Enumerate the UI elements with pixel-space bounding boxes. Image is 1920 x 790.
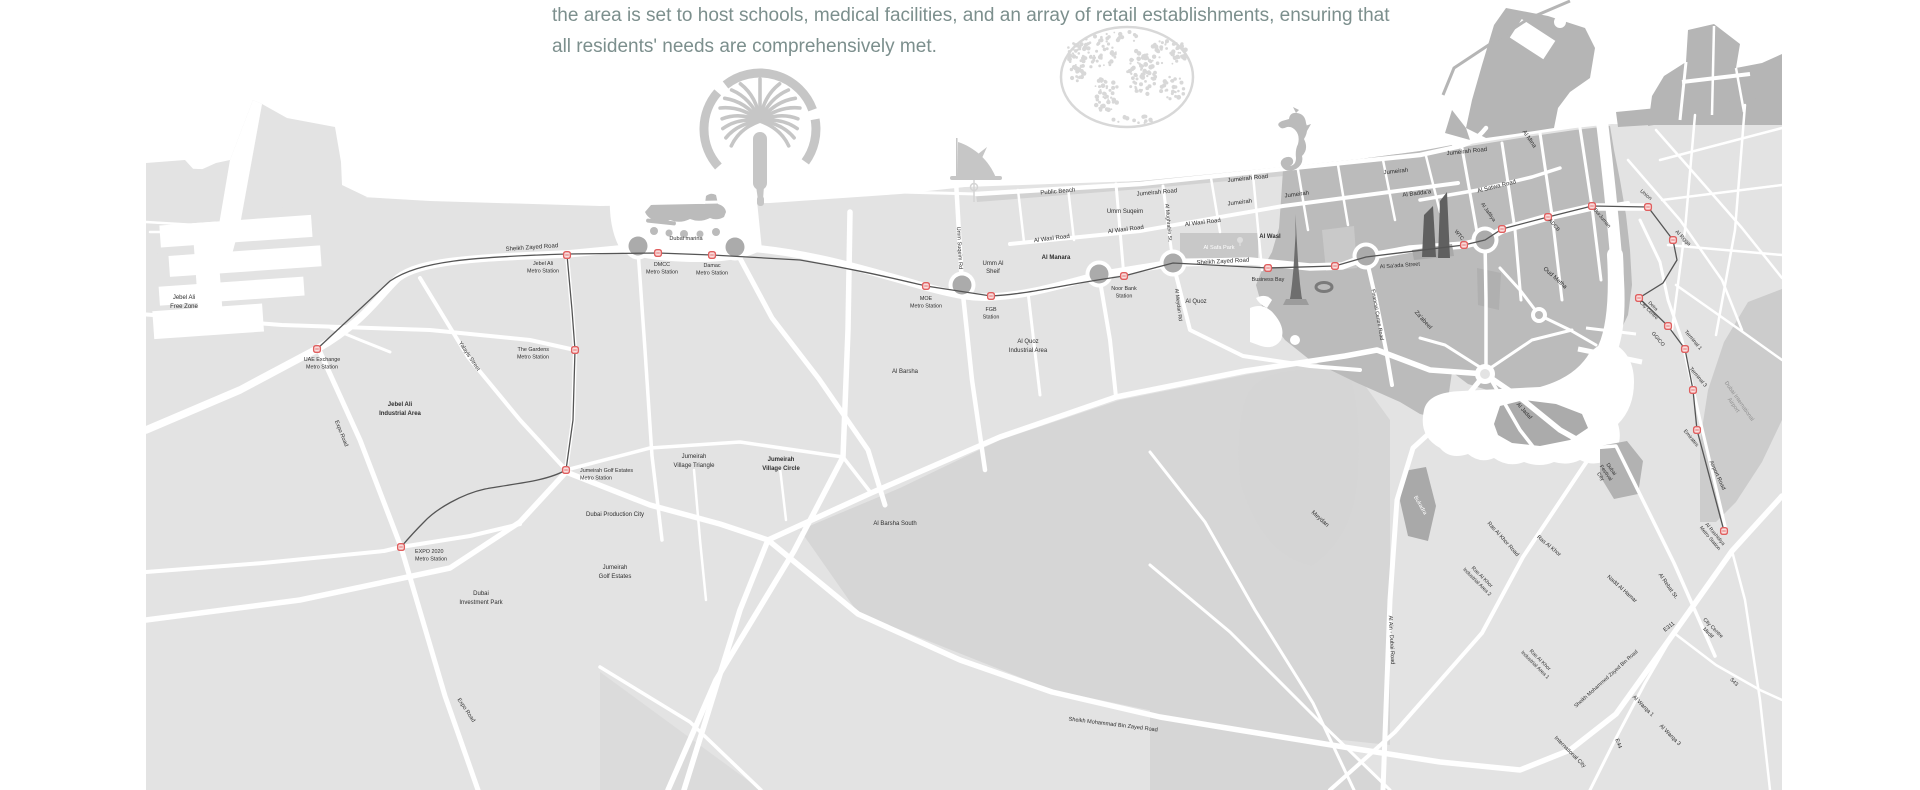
svg-text:M: M [1666,324,1670,329]
svg-text:Al Barsha: Al Barsha [892,369,919,375]
svg-text:Dubai marina: Dubai marina [669,236,703,242]
svg-text:Dubai Production City: Dubai Production City [586,512,644,518]
svg-text:Business Bay: Business Bay [1252,277,1285,283]
svg-text:M: M [1683,347,1687,352]
svg-text:M: M [710,253,714,258]
svg-text:M: M [1122,274,1126,279]
svg-text:Metro Station: Metro Station [580,476,612,482]
svg-text:Metro Station: Metro Station [306,365,338,371]
svg-text:MOE: MOE [920,296,933,302]
svg-text:Al Safa Park: Al Safa Park [1203,245,1234,251]
svg-text:M: M [399,545,403,550]
svg-text:Jebel Ali: Jebel Ali [173,295,195,301]
svg-text:Free Zone: Free Zone [170,304,198,310]
svg-text:Metro Station: Metro Station [415,557,447,563]
svg-text:M: M [315,347,319,352]
svg-text:Jebel Ali: Jebel Ali [533,261,553,267]
svg-text:Industrial Area: Industrial Area [379,411,421,417]
svg-text:Jumeirah: Jumeirah [768,457,795,463]
svg-text:Metro Station: Metro Station [646,270,678,276]
svg-text:Metro Station: Metro Station [696,271,728,277]
svg-text:Umm Al: Umm Al [983,261,1004,267]
svg-text:M: M [1500,227,1504,232]
svg-text:M: M [1637,296,1641,301]
svg-text:Investment Park: Investment Park [459,600,503,606]
svg-text:Dubai: Dubai [473,591,489,597]
svg-text:The Gardens: The Gardens [518,347,550,353]
svg-text:Jumeirah: Jumeirah [603,565,628,571]
svg-text:M: M [564,468,568,473]
svg-text:Umm Suqeim: Umm Suqeim [1107,209,1143,215]
svg-text:M: M [989,294,993,299]
svg-text:M: M [1590,204,1594,209]
svg-text:Station: Station [1116,294,1133,300]
svg-text:M: M [573,348,577,353]
svg-text:M: M [1333,264,1337,269]
svg-text:Jumeirah Golf Estates: Jumeirah Golf Estates [580,468,633,474]
svg-text:Noor Bank: Noor Bank [1111,286,1137,292]
svg-text:M: M [1646,205,1650,210]
svg-text:all residents' needs are compr: all residents' needs are comprehensively… [552,36,937,57]
svg-text:M: M [1671,238,1675,243]
svg-text:EXPO 2020: EXPO 2020 [415,549,443,555]
svg-text:M: M [565,253,569,258]
svg-text:DMCC: DMCC [654,262,670,268]
svg-text:M: M [1462,243,1466,248]
svg-text:Al Quoz: Al Quoz [1185,299,1206,305]
svg-text:Jebel Ali: Jebel Ali [388,402,413,408]
svg-text:M: M [1266,266,1270,271]
svg-text:Golf Estates: Golf Estates [599,574,632,580]
svg-text:Village Triangle: Village Triangle [674,463,716,469]
svg-text:Jumeirah: Jumeirah [682,454,707,460]
svg-text:M: M [1722,529,1726,534]
svg-text:FGB: FGB [985,307,996,313]
svg-text:Al Wasl: Al Wasl [1259,234,1281,240]
svg-text:Damac: Damac [703,263,720,269]
svg-text:Metro Station: Metro Station [517,355,549,361]
svg-text:Al Quoz: Al Quoz [1017,339,1038,345]
svg-text:Station: Station [983,315,1000,321]
svg-text:Metro Station: Metro Station [527,269,559,275]
svg-text:M: M [1695,428,1699,433]
svg-text:Industrial Area: Industrial Area [1009,348,1048,354]
svg-text:Village Circle: Village Circle [762,466,800,472]
svg-text:M: M [924,284,928,289]
svg-text:M: M [1691,388,1695,393]
svg-text:Al Barsha South: Al Barsha South [873,521,916,527]
svg-text:M: M [656,251,660,256]
svg-text:UAE Exchange: UAE Exchange [304,357,341,363]
svg-text:the area is set to host school: the area is set to host schools, medical… [552,5,1390,26]
svg-text:Metro Station: Metro Station [910,304,942,310]
svg-text:Al Manara: Al Manara [1042,255,1071,261]
svg-text:Sheif: Sheif [986,269,1000,275]
